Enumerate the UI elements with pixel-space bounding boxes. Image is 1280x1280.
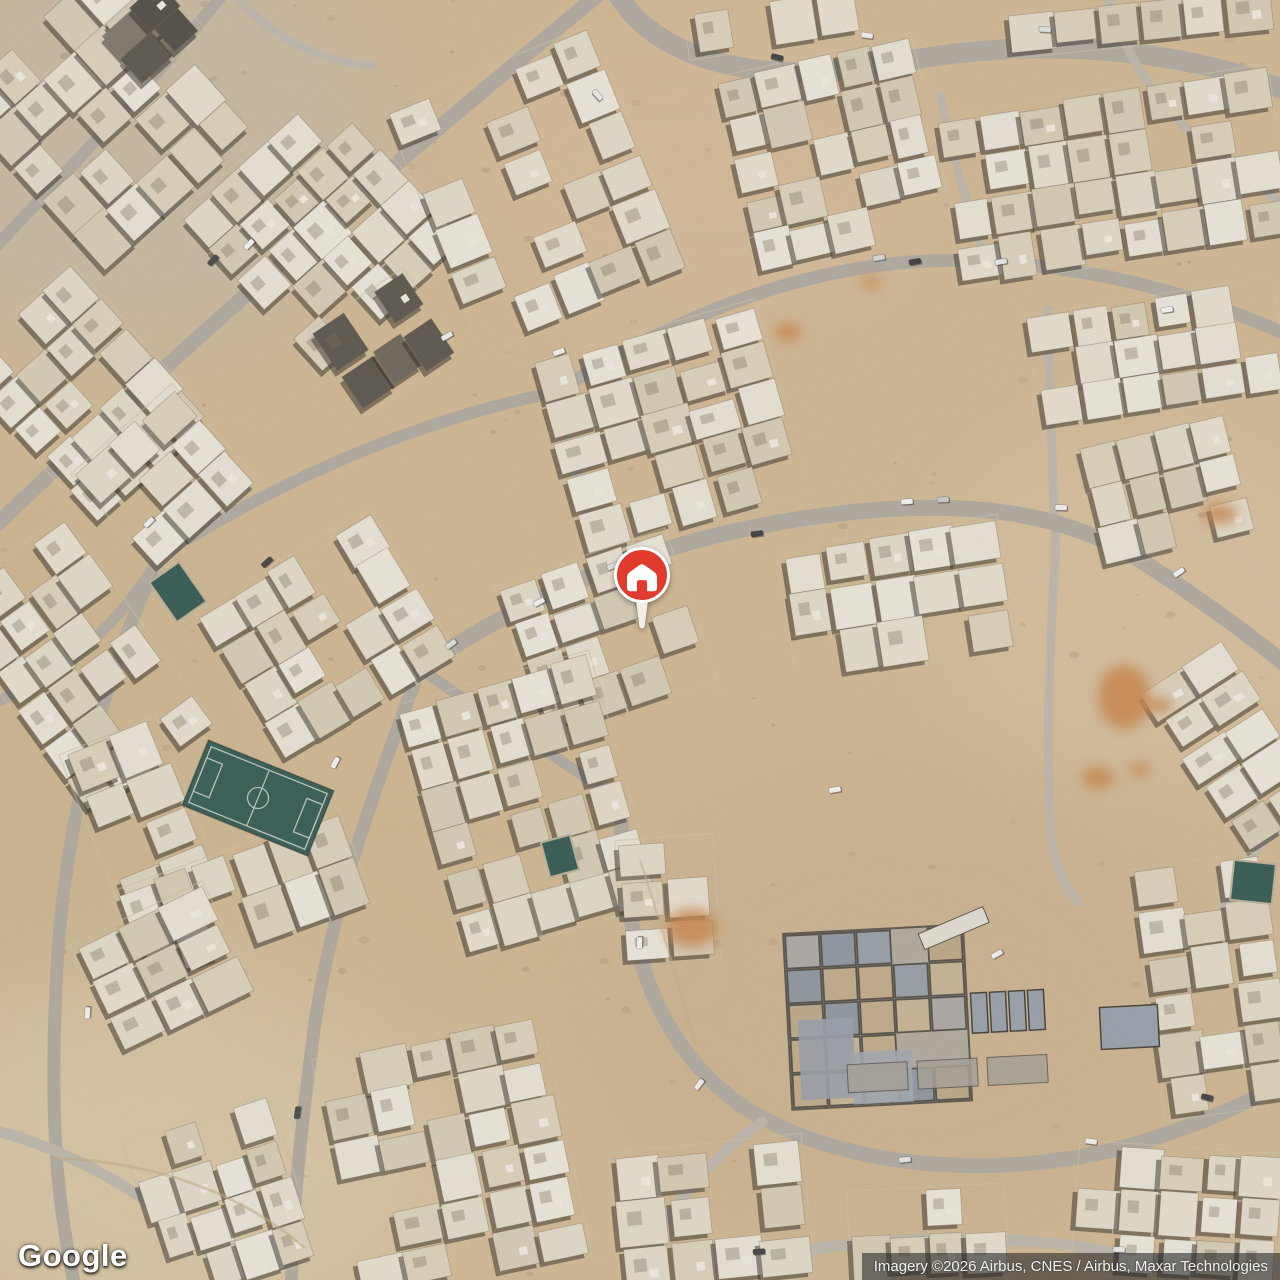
place-marker[interactable] bbox=[608, 540, 676, 636]
place-marker-pin-graphic bbox=[608, 540, 676, 636]
google-logo[interactable]: Google bbox=[18, 1238, 128, 1274]
map-attribution: Imagery ©2026 Airbus, CNES / Airbus, Max… bbox=[862, 1253, 1280, 1280]
google-maps-satellite-view[interactable]: Google Imagery ©2026 Airbus, CNES / Airb… bbox=[0, 0, 1280, 1280]
google-logo-text: Google bbox=[18, 1238, 128, 1273]
imagery-grain bbox=[0, 0, 1280, 1280]
attribution-text: Imagery ©2026 Airbus, CNES / Airbus, Max… bbox=[874, 1258, 1268, 1275]
satellite-imagery bbox=[0, 0, 1280, 1280]
